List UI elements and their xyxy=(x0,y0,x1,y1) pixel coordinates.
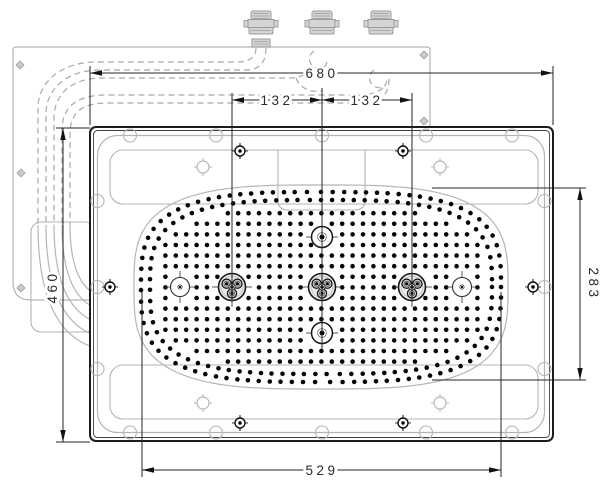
spray-nozzle-dot xyxy=(407,377,412,382)
spray-nozzle-dot xyxy=(194,232,199,237)
spray-nozzle-dot xyxy=(215,253,220,258)
spray-nozzle-dot xyxy=(257,338,262,343)
spray-nozzle-dot xyxy=(465,328,470,333)
spray-nozzle-dot xyxy=(174,253,179,258)
spray-nozzle-dot xyxy=(151,227,156,232)
spray-nozzle-dot xyxy=(205,222,210,227)
spray-nozzle-dot xyxy=(319,198,324,203)
spray-nozzle-dot xyxy=(350,349,355,354)
spray-nozzle-dot xyxy=(362,198,367,203)
pipe-connector xyxy=(364,11,398,34)
spray-nozzle-dot xyxy=(184,253,189,258)
spray-nozzle-dot xyxy=(465,306,470,311)
spray-nozzle-dot xyxy=(454,317,459,322)
spray-nozzle-dot xyxy=(423,349,428,354)
spray-nozzle-dot xyxy=(246,306,251,311)
spray-nozzle-dot xyxy=(353,190,358,195)
spray-nozzle-dot xyxy=(340,338,345,343)
spray-nozzle-dot xyxy=(257,306,262,311)
spray-nozzle-dot xyxy=(454,232,459,237)
spray-nozzle-dot xyxy=(382,371,387,376)
spray-nozzle-dot xyxy=(278,222,283,227)
spray-nozzle-dot xyxy=(475,275,480,280)
spray-nozzle-dot xyxy=(226,359,231,364)
spray-nozzle-dot xyxy=(236,222,241,227)
spray-nozzle-dot xyxy=(200,207,205,212)
spray-nozzle-dot xyxy=(184,243,189,248)
spray-nozzle-dot xyxy=(361,264,366,269)
spray-nozzle-dot xyxy=(495,243,500,248)
spray-nozzle-dot xyxy=(361,275,366,280)
spray-nozzle-dot xyxy=(352,198,357,203)
spray-nozzle-dot xyxy=(309,317,314,322)
spray-nozzle-dot xyxy=(490,277,495,282)
spray-nozzle-dot xyxy=(231,201,236,206)
spray-nozzle-dot xyxy=(402,264,407,269)
spray-nozzle-dot xyxy=(313,372,318,377)
spray-nozzle-dot xyxy=(480,235,485,240)
spray-nozzle-dot xyxy=(413,349,418,354)
spray-nozzle-dot xyxy=(330,317,335,322)
spray-nozzle-dot xyxy=(477,353,482,358)
spray-nozzle-dot xyxy=(267,296,272,301)
spray-nozzle-dot xyxy=(155,330,160,335)
spray-nozzle-dot xyxy=(371,264,376,269)
spray-nozzle-dot xyxy=(361,328,366,333)
spray-nozzle-dot xyxy=(257,222,262,227)
spray-nozzle-dot xyxy=(139,267,144,272)
spray-nozzle-dot xyxy=(308,198,313,203)
spray-nozzle-dot xyxy=(350,222,355,227)
spray-nozzle-dot xyxy=(257,317,262,322)
spray-nozzle-dot xyxy=(475,285,480,290)
spray-nozzle-dot xyxy=(174,264,179,269)
spray-nozzle-dot xyxy=(298,317,303,322)
spray-nozzle-dot xyxy=(142,245,147,250)
spray-nozzle-dot xyxy=(434,222,439,227)
spray-nozzle-dot xyxy=(313,380,318,385)
spray-nozzle-dot xyxy=(305,190,310,195)
spray-nozzle-dot xyxy=(352,380,357,385)
spray-nozzle-dot xyxy=(444,338,449,343)
spray-nozzle-dot xyxy=(194,349,199,354)
spray-nozzle-dot xyxy=(236,338,241,343)
spray-nozzle-dot xyxy=(252,199,257,204)
spray-nozzle-dot xyxy=(444,222,449,227)
spray-nozzle-dot xyxy=(259,371,264,376)
spray-nozzle-dot xyxy=(319,253,324,258)
spray-nozzle-dot xyxy=(278,243,283,248)
spray-nozzle-dot xyxy=(215,338,220,343)
spray-nozzle-dot xyxy=(444,285,449,290)
spray-nozzle-dot xyxy=(402,232,407,237)
spray-nozzle-dot xyxy=(236,349,241,354)
spray-nozzle-dot xyxy=(298,275,303,280)
spray-nozzle-dot xyxy=(215,243,220,248)
spray-nozzle-dot xyxy=(278,296,283,301)
spray-nozzle-dot xyxy=(228,193,233,198)
spray-nozzle-dot xyxy=(183,365,188,370)
spray-nozzle-dot xyxy=(340,275,345,280)
spray-nozzle-dot xyxy=(176,352,181,357)
spray-nozzle-dot xyxy=(340,349,345,354)
spray-nozzle-dot xyxy=(267,275,272,280)
spray-nozzle-dot xyxy=(464,350,469,355)
spray-nozzle-dot xyxy=(457,215,462,220)
spray-nozzle-dot xyxy=(330,190,335,195)
spray-nozzle-dot xyxy=(180,215,185,220)
spray-nozzle-dot xyxy=(417,203,422,208)
spray-nozzle-dot xyxy=(226,222,231,227)
spray-nozzle-dot xyxy=(226,306,231,311)
spray-nozzle-dot xyxy=(350,317,355,322)
spray-nozzle-dot xyxy=(385,191,390,196)
spray-nozzle-dot xyxy=(340,232,345,237)
spray-nozzle-dot xyxy=(407,193,412,198)
spray-nozzle-dot xyxy=(246,328,251,333)
spray-nozzle-dot xyxy=(402,338,407,343)
spray-nozzle-dot xyxy=(371,243,376,248)
spray-nozzle-dot xyxy=(226,243,231,248)
technical-drawing-page: 680132132529460283 xyxy=(0,0,600,489)
spray-nozzle-dot xyxy=(423,317,428,322)
spray-nozzle-dot xyxy=(350,264,355,269)
spray-nozzle-dot xyxy=(216,366,221,371)
spray-nozzle-dot xyxy=(168,346,173,351)
spray-nozzle-dot xyxy=(193,369,198,374)
spray-nozzle-dot xyxy=(194,328,199,333)
spray-nozzle-dot xyxy=(146,236,151,241)
spray-nozzle-dot xyxy=(434,338,439,343)
spray-nozzle-dot xyxy=(246,317,251,322)
spray-nozzle-dot xyxy=(414,367,419,372)
spray-nozzle-dot xyxy=(340,211,345,216)
spray-nozzle-dot xyxy=(350,285,355,290)
spray-nozzle-dot xyxy=(288,338,293,343)
spray-nozzle-dot xyxy=(382,296,387,301)
spray-nozzle-dot xyxy=(382,306,387,311)
spray-nozzle-dot xyxy=(163,253,168,258)
spray-nozzle-dot xyxy=(475,317,480,322)
spray-nozzle-dot xyxy=(246,222,251,227)
spray-nozzle-dot xyxy=(194,253,199,258)
spray-nozzle-dot xyxy=(392,359,397,364)
spray-nozzle-dot xyxy=(278,275,283,280)
spray-nozzle-dot xyxy=(384,199,389,204)
spray-nozzle-dot xyxy=(350,253,355,258)
spray-nozzle-dot xyxy=(246,338,251,343)
spray-nozzle-dot xyxy=(215,328,220,333)
spray-nozzle-dot xyxy=(152,246,157,251)
spray-nozzle-dot xyxy=(479,336,484,341)
spray-nozzle-dot xyxy=(382,222,387,227)
spray-nozzle-dot xyxy=(278,328,283,333)
spray-nozzle-dot xyxy=(298,296,303,301)
spray-nozzle-dot xyxy=(139,277,144,282)
spray-nozzle-dot xyxy=(413,328,418,333)
spray-nozzle-dot xyxy=(184,328,189,333)
spray-nozzle-dot xyxy=(194,296,199,301)
spray-nozzle-dot xyxy=(361,359,366,364)
spray-nozzle-dot xyxy=(361,317,366,322)
spray-nozzle-dot xyxy=(392,243,397,248)
spray-nozzle-dot xyxy=(382,211,387,216)
spray-nozzle-dot xyxy=(246,253,251,258)
spray-nozzle-dot xyxy=(392,285,397,290)
spray-nozzle-dot xyxy=(267,232,272,237)
spray-nozzle-dot xyxy=(434,349,439,354)
spray-nozzle-dot xyxy=(267,243,272,248)
spray-nozzle-dot xyxy=(148,299,153,304)
spray-nozzle-dot xyxy=(151,320,156,325)
spray-nozzle-dot xyxy=(448,368,453,373)
spray-nozzle-dot xyxy=(285,198,290,203)
dimension-label: 132 xyxy=(260,93,293,108)
spray-nozzle-dot xyxy=(324,372,329,377)
spray-nozzle-dot xyxy=(288,232,293,237)
spray-nozzle-dot xyxy=(402,349,407,354)
spray-nozzle-dot xyxy=(465,253,470,258)
spray-nozzle-dot xyxy=(248,370,253,375)
spray-nozzle-dot xyxy=(402,359,407,364)
spray-nozzle-dot xyxy=(215,275,220,280)
spray-nozzle-dot xyxy=(392,349,397,354)
spray-nozzle-dot xyxy=(434,306,439,311)
spray-nozzle-dot xyxy=(382,359,387,364)
spray-nozzle-dot xyxy=(156,236,161,241)
spray-nozzle-dot xyxy=(465,317,470,322)
spray-nozzle-dot xyxy=(278,379,283,384)
spray-nozzle-dot xyxy=(330,306,335,311)
spray-nozzle-dot xyxy=(226,338,231,343)
spray-nozzle-dot xyxy=(205,306,210,311)
spray-nozzle-dot xyxy=(423,306,428,311)
spray-nozzle-dot xyxy=(350,296,355,301)
spray-nozzle-dot xyxy=(288,296,293,301)
spray-nozzle-dot xyxy=(236,306,241,311)
spray-nozzle-dot xyxy=(382,349,387,354)
spray-nozzle-dot xyxy=(257,285,262,290)
spray-nozzle-dot xyxy=(444,232,449,237)
spray-nozzle-dot xyxy=(350,306,355,311)
spray-nozzle-dot xyxy=(340,328,345,333)
spray-nozzle-dot xyxy=(382,285,387,290)
spray-nozzle-dot xyxy=(226,264,231,269)
spray-nozzle-dot xyxy=(371,253,376,258)
spray-nozzle-dot xyxy=(194,338,199,343)
spray-nozzle-dot xyxy=(167,212,172,217)
spray-nozzle-dot xyxy=(194,222,199,227)
spray-nozzle-dot xyxy=(156,349,161,354)
spray-nozzle-dot xyxy=(340,285,345,290)
spray-nozzle-dot xyxy=(237,369,242,374)
spray-nozzle-dot xyxy=(298,243,303,248)
spray-nozzle-dot xyxy=(298,211,303,216)
spray-nozzle-dot xyxy=(267,359,272,364)
spray-nozzle-dot xyxy=(423,243,428,248)
spray-nozzle-dot xyxy=(392,275,397,280)
spray-nozzle-dot xyxy=(497,253,502,258)
spray-nozzle-dot xyxy=(392,328,397,333)
spray-nozzle-dot xyxy=(206,197,211,202)
spray-nozzle-dot xyxy=(424,365,429,370)
spray-nozzle-dot xyxy=(235,377,240,382)
spray-nozzle-dot xyxy=(423,338,428,343)
spray-nozzle-dot xyxy=(267,317,272,322)
spray-nozzle-dot xyxy=(257,275,262,280)
spray-nozzle-dot xyxy=(341,198,346,203)
spray-nozzle-dot xyxy=(474,227,479,232)
diamond-screw xyxy=(16,61,24,69)
spray-nozzle-dot xyxy=(288,275,293,280)
spray-nozzle-dot xyxy=(454,338,459,343)
spray-nozzle-dot xyxy=(413,359,418,364)
spray-nozzle-dot xyxy=(428,373,433,378)
spray-nozzle-dot xyxy=(371,285,376,290)
spray-nozzle-dot xyxy=(298,222,303,227)
spray-nozzle-dot xyxy=(205,317,210,322)
spray-nozzle-dot xyxy=(477,217,482,222)
spray-nozzle-dot xyxy=(371,232,376,237)
spray-nozzle-dot xyxy=(444,275,449,280)
spray-nozzle-dot xyxy=(236,211,241,216)
spray-nozzle-dot xyxy=(278,317,283,322)
spray-nozzle-dot xyxy=(226,328,231,333)
spray-nozzle-dot xyxy=(392,232,397,237)
spray-nozzle-dot xyxy=(382,275,387,280)
spray-nozzle-dot xyxy=(269,371,274,376)
spray-nozzle-dot xyxy=(330,211,335,216)
spray-nozzle-dot xyxy=(163,296,168,301)
spray-nozzle-dot xyxy=(174,232,179,237)
spray-nozzle-dot xyxy=(371,275,376,280)
spray-nozzle-dot xyxy=(163,228,168,233)
spray-nozzle-dot xyxy=(160,339,165,344)
spray-nozzle-dot xyxy=(330,222,335,227)
spray-nozzle-dot xyxy=(236,232,241,237)
spray-nozzle-dot xyxy=(423,232,428,237)
spray-nozzle-dot xyxy=(371,359,376,364)
spray-nozzle-dot xyxy=(423,328,428,333)
spray-nozzle-dot xyxy=(309,264,314,269)
spray-nozzle-dot xyxy=(371,296,376,301)
spray-nozzle-dot xyxy=(371,338,376,343)
spray-nozzle-dot xyxy=(455,355,460,360)
spray-nozzle-dot xyxy=(196,361,201,366)
spray-nozzle-dot xyxy=(392,296,397,301)
spray-nozzle-dot xyxy=(319,359,324,364)
spray-nozzle-dot xyxy=(413,317,418,322)
spray-nozzle-dot xyxy=(413,232,418,237)
spray-nozzle-dot xyxy=(278,349,283,354)
spray-nozzle-dot xyxy=(475,243,480,248)
spray-nozzle-dot xyxy=(438,371,443,376)
spray-nozzle-dot xyxy=(236,359,241,364)
spray-nozzle-dot xyxy=(413,306,418,311)
spray-nozzle-dot xyxy=(246,243,251,248)
spray-nozzle-dot xyxy=(246,296,251,301)
spray-nozzle-dot xyxy=(194,264,199,269)
spray-nozzle-dot xyxy=(434,253,439,258)
spray-nozzle-dot xyxy=(290,380,295,385)
spray-nozzle-dot xyxy=(454,264,459,269)
diamond-screw xyxy=(420,117,428,125)
spray-nozzle-dot xyxy=(148,277,153,282)
spray-nozzle-dot xyxy=(465,232,470,237)
spray-nozzle-dot xyxy=(434,285,439,290)
spray-nozzle-dot xyxy=(444,349,449,354)
spray-nozzle-dot xyxy=(288,243,293,248)
supply-connectors xyxy=(244,11,398,47)
spray-nozzle-dot xyxy=(413,338,418,343)
spray-nozzle-dot xyxy=(444,317,449,322)
spray-nozzle-dot xyxy=(360,371,365,376)
spray-nozzle-dot xyxy=(298,338,303,343)
spray-nozzle-dot xyxy=(402,222,407,227)
spray-nozzle-dot xyxy=(205,264,210,269)
spray-nozzle-dot xyxy=(392,211,397,216)
spray-nozzle-dot xyxy=(454,243,459,248)
spray-nozzle-dot xyxy=(361,243,366,248)
spray-nozzle-dot xyxy=(444,328,449,333)
spray-nozzle-dot xyxy=(361,296,366,301)
spray-nozzle-dot xyxy=(350,243,355,248)
spray-nozzle-dot xyxy=(220,203,225,208)
spray-nozzle-dot xyxy=(413,222,418,227)
spray-nozzle-dot xyxy=(340,253,345,258)
spray-nozzle-dot xyxy=(205,275,210,280)
spray-nozzle-dot xyxy=(288,285,293,290)
spray-nozzle-dot xyxy=(340,306,345,311)
spray-nozzle-dot xyxy=(226,317,231,322)
spray-nozzle-dot xyxy=(417,375,422,380)
spray-nozzle-dot xyxy=(236,253,241,258)
spray-nozzle-dot xyxy=(301,380,306,385)
spray-nozzle-dot xyxy=(319,190,324,195)
spray-nozzle-dot xyxy=(423,296,428,301)
spray-nozzle-dot xyxy=(454,253,459,258)
spray-nozzle-dot xyxy=(444,253,449,258)
spray-nozzle-dot xyxy=(435,363,440,368)
dimension-label: 132 xyxy=(350,93,383,108)
spray-nozzle-dot xyxy=(215,264,220,269)
spray-nozzle-dot xyxy=(278,359,283,364)
spray-nozzle-dot xyxy=(194,243,199,248)
spray-nozzle-dot xyxy=(186,357,191,362)
spray-nozzle-dot xyxy=(282,190,287,195)
spray-nozzle-dot xyxy=(361,349,366,354)
spray-nozzle-dot xyxy=(434,317,439,322)
spray-nozzle-dot xyxy=(260,191,265,196)
spray-nozzle-dot xyxy=(350,211,355,216)
spray-nozzle-dot xyxy=(340,243,345,248)
spray-nozzle-dot xyxy=(361,253,366,258)
spray-nozzle-dot xyxy=(271,190,276,195)
spray-nozzle-dot xyxy=(413,253,418,258)
spray-nozzle-dot xyxy=(163,317,168,322)
spray-nozzle-dot xyxy=(206,364,211,369)
spray-nozzle-dot xyxy=(246,378,251,383)
spray-nozzle-dot xyxy=(298,232,303,237)
spray-nozzle-dot xyxy=(423,253,428,258)
spray-nozzle-dot xyxy=(226,253,231,258)
spray-nozzle-dot xyxy=(498,264,503,269)
spray-nozzle-dot xyxy=(499,285,504,290)
spray-nozzle-dot xyxy=(434,296,439,301)
spray-nozzle-dot xyxy=(163,328,168,333)
spray-nozzle-dot xyxy=(340,317,345,322)
spray-nozzle-dot xyxy=(249,191,254,196)
